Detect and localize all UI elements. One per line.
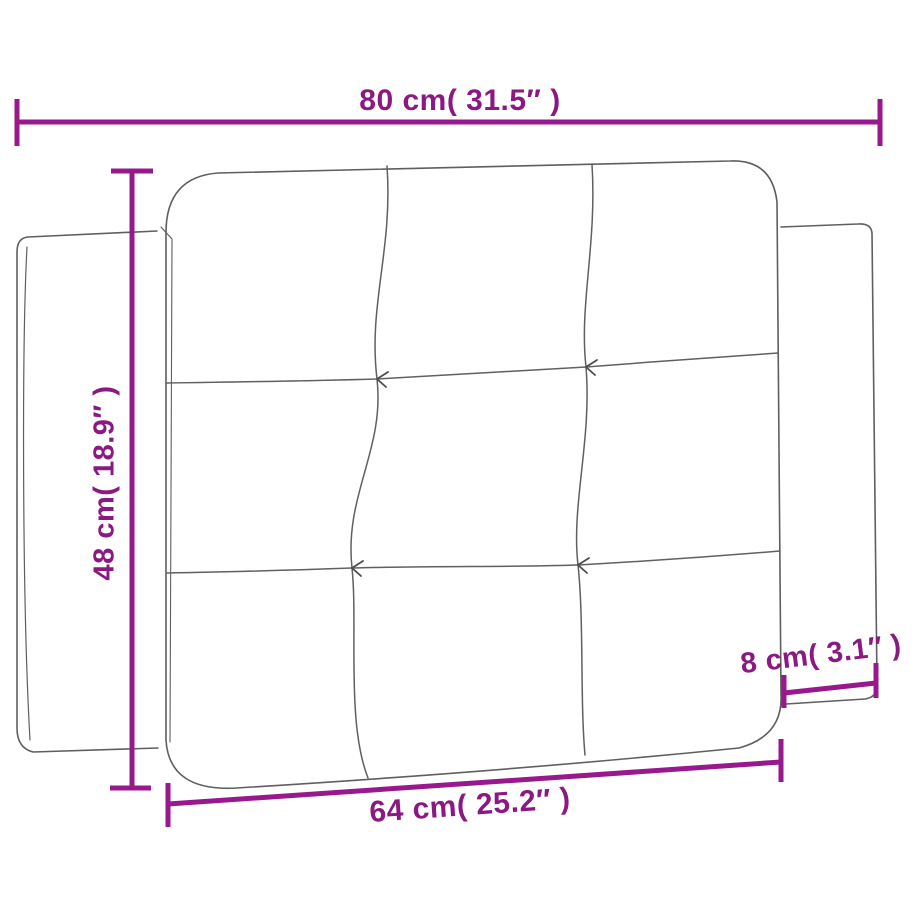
left-height-label: 48 cm( 18.9″ ) (91, 386, 120, 581)
line-art (0, 0, 920, 920)
dimension-diagram: 80 cm( 31.5″ ) 48 cm( 18.9″ ) 64 cm( 25.… (0, 0, 920, 920)
left-side-panel (17, 231, 158, 752)
right-side-panel-outline (781, 224, 877, 704)
top-width-label: 80 cm( 31.5″ ) (359, 86, 560, 116)
left-side-panel-crease (24, 247, 30, 740)
left-side-panel-outline (17, 231, 158, 752)
headboard-cushion (161, 161, 781, 788)
right-side-panel (781, 224, 877, 704)
headboard-outline (166, 161, 781, 788)
